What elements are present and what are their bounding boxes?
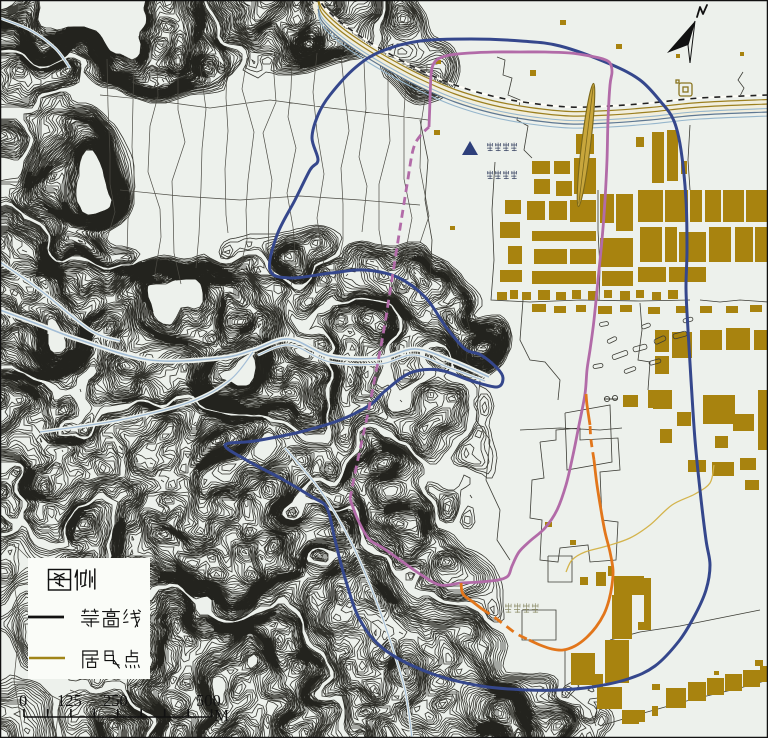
svg-text:125: 125: [57, 691, 82, 710]
svg-text:M: M: [214, 706, 229, 725]
svg-text:0: 0: [19, 691, 27, 710]
svg-text:250: 250: [103, 691, 128, 710]
